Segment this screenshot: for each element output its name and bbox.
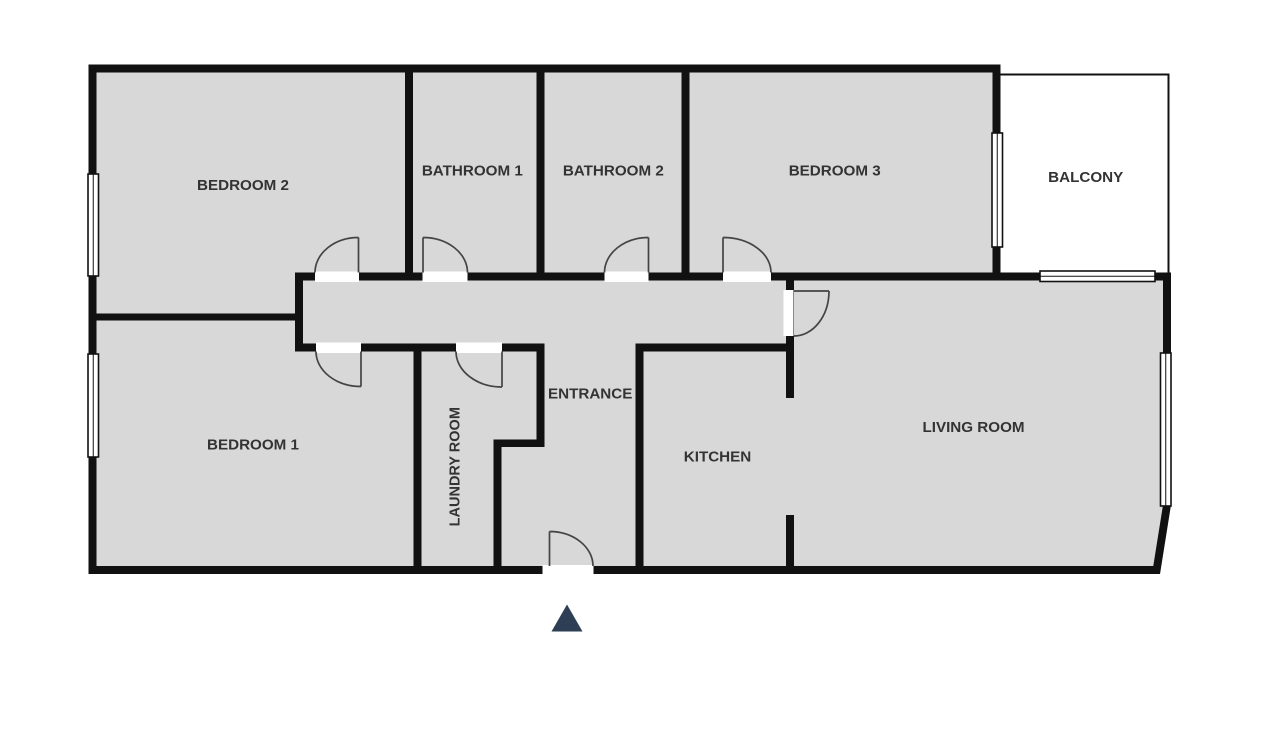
- svg-text:BEDROOM 3: BEDROOM 3: [789, 163, 881, 180]
- svg-text:BEDROOM 1: BEDROOM 1: [207, 437, 300, 454]
- svg-text:LAUNDRY ROOM: LAUNDRY ROOM: [448, 407, 464, 526]
- svg-text:BALCONY: BALCONY: [1048, 169, 1123, 186]
- svg-text:BATHROOM 2: BATHROOM 2: [563, 162, 664, 179]
- svg-text:KITCHEN: KITCHEN: [684, 449, 752, 466]
- svg-text:ENTRANCE: ENTRANCE: [548, 386, 632, 403]
- svg-text:LIVING ROOM: LIVING ROOM: [922, 419, 1024, 436]
- svg-text:BATHROOM 1: BATHROOM 1: [422, 162, 524, 179]
- svg-text:BEDROOM 2: BEDROOM 2: [197, 177, 289, 194]
